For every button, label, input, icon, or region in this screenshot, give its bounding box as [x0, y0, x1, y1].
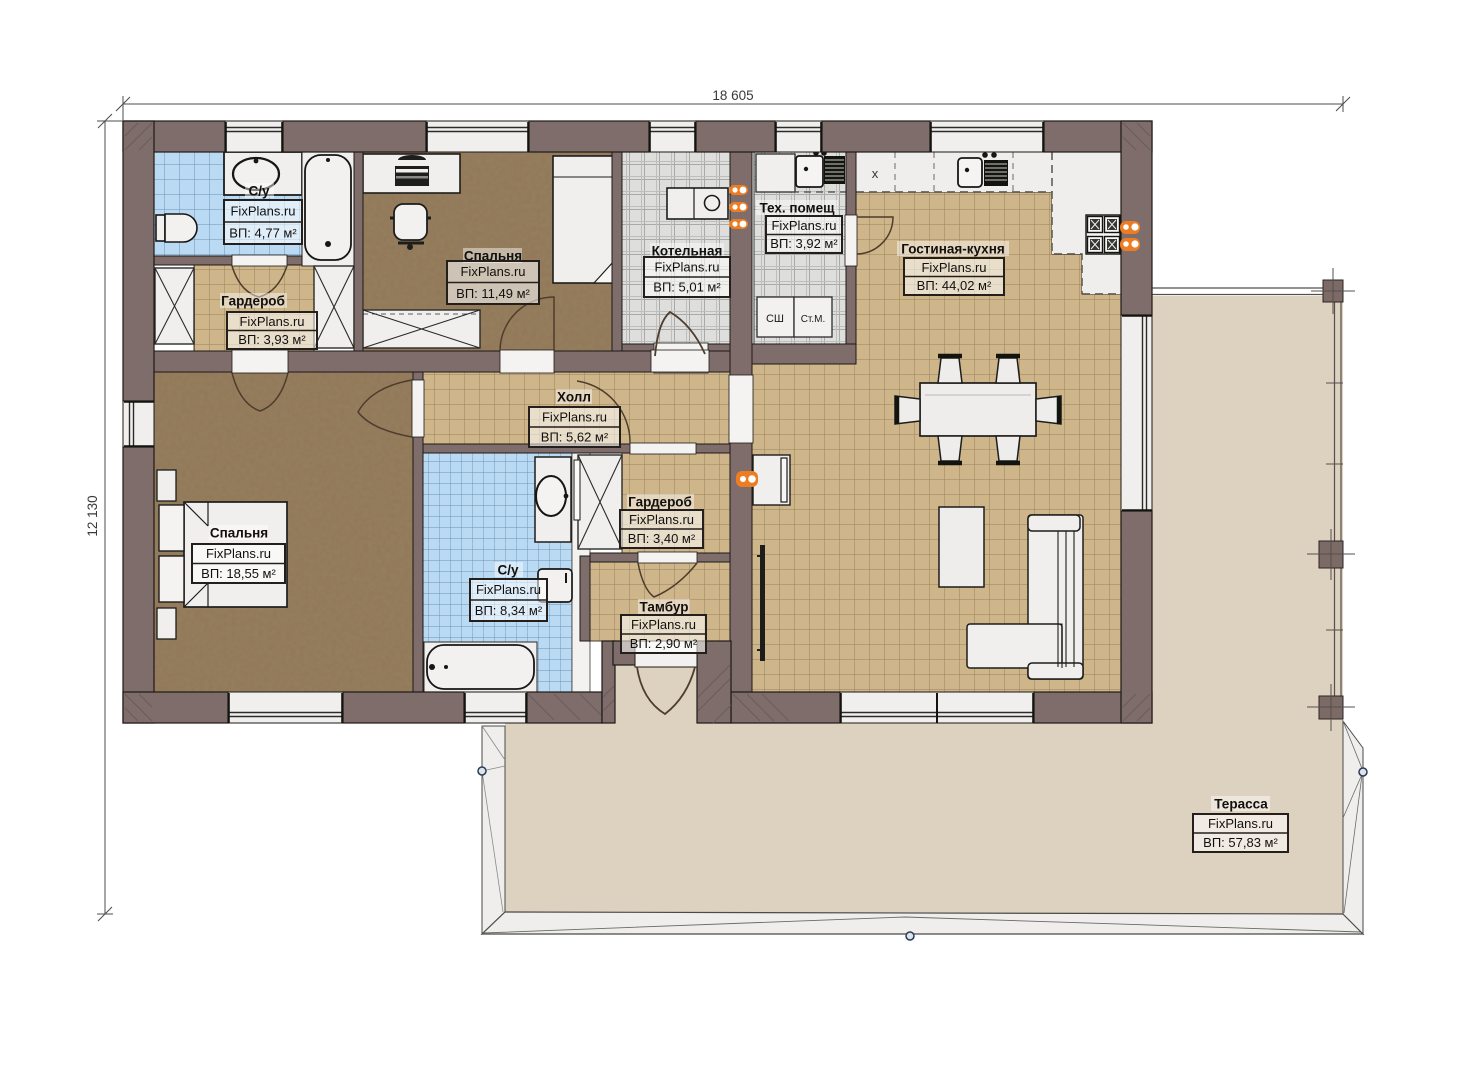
svg-text:FixPlans.ru: FixPlans.ru [654, 260, 719, 275]
svg-text:СШ: СШ [766, 313, 784, 325]
svg-text:ВП: 8,34 м²: ВП: 8,34 м² [475, 603, 543, 618]
svg-text:FixPlans.ru: FixPlans.ru [629, 512, 694, 527]
svg-text:ВП: 2,90 м²: ВП: 2,90 м² [630, 636, 698, 651]
svg-text:ВП: 18,55 м²: ВП: 18,55 м² [201, 566, 276, 581]
svg-text:ВП: 3,93 м²: ВП: 3,93 м² [238, 332, 306, 347]
svg-text:Тамбур: Тамбур [640, 600, 689, 615]
svg-text:ВП: 3,92 м²: ВП: 3,92 м² [770, 236, 838, 251]
svg-text:Терасса: Терасса [1214, 797, 1268, 812]
svg-text:ВП: 5,62 м²: ВП: 5,62 м² [541, 430, 609, 445]
svg-text:ВП: 44,02 м²: ВП: 44,02 м² [917, 278, 992, 293]
svg-text:ВП: 5,01 м²: ВП: 5,01 м² [653, 280, 721, 295]
svg-text:С/у: С/у [248, 184, 270, 199]
svg-text:Гостиная-кухня: Гостиная-кухня [901, 242, 1004, 257]
svg-text:Холл: Холл [557, 390, 591, 405]
svg-text:ВП: 4,77 м²: ВП: 4,77 м² [229, 226, 297, 241]
svg-text:Спальня: Спальня [210, 526, 268, 541]
svg-text:FixPlans.ru: FixPlans.ru [1208, 816, 1273, 831]
svg-text:FixPlans.ru: FixPlans.ru [476, 582, 541, 597]
svg-text:FixPlans.ru: FixPlans.ru [230, 204, 295, 219]
svg-text:12 130: 12 130 [85, 495, 100, 536]
svg-text:FixPlans.ru: FixPlans.ru [460, 264, 525, 279]
svg-text:18 605: 18 605 [712, 88, 753, 103]
svg-text:Тех. помещ: Тех. помещ [759, 201, 835, 216]
svg-text:С/у: С/у [497, 563, 519, 578]
svg-text:FixPlans.ru: FixPlans.ru [771, 218, 836, 233]
svg-text:FixPlans.ru: FixPlans.ru [206, 546, 271, 561]
svg-text:Гардероб: Гардероб [221, 294, 285, 309]
svg-text:ВП: 3,40 м²: ВП: 3,40 м² [628, 531, 696, 546]
svg-text:Гардероб: Гардероб [628, 495, 692, 510]
svg-text:FixPlans.ru: FixPlans.ru [239, 314, 304, 329]
svg-text:ВП: 57,83 м²: ВП: 57,83 м² [1203, 835, 1278, 850]
svg-text:FixPlans.ru: FixPlans.ru [631, 617, 696, 632]
svg-text:FixPlans.ru: FixPlans.ru [921, 260, 986, 275]
svg-text:Ст.М.: Ст.М. [801, 314, 826, 325]
svg-text:x: x [872, 166, 879, 181]
svg-text:ВП: 11,49 м²: ВП: 11,49 м² [456, 286, 530, 301]
svg-text:FixPlans.ru: FixPlans.ru [542, 410, 607, 425]
